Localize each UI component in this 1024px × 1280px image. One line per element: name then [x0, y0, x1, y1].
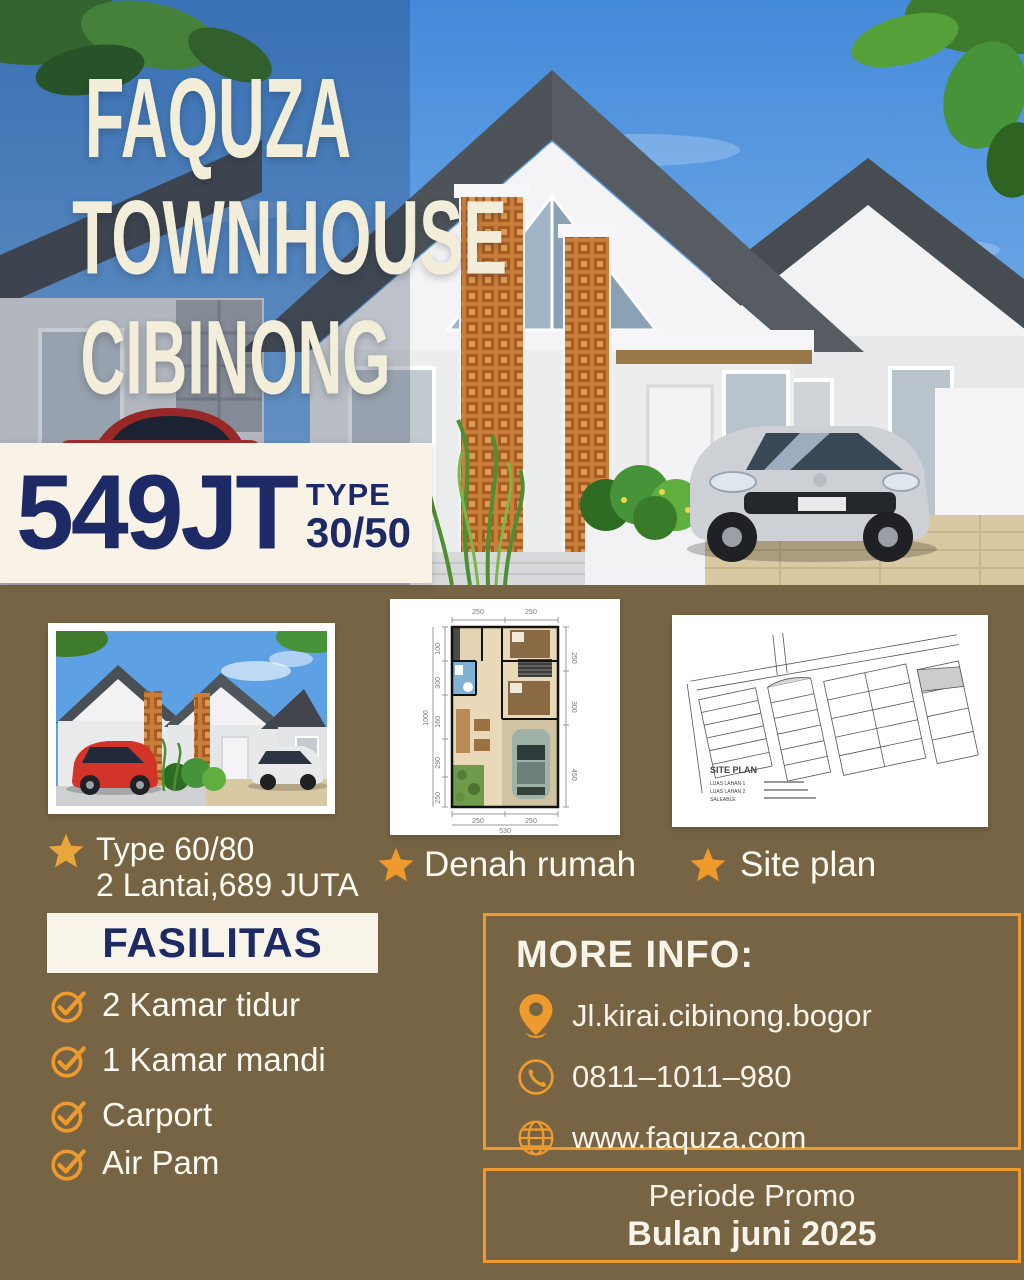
phone-text: 0811–1011–980: [572, 1059, 792, 1095]
address-text: Jl.kirai.cibinong.bogor: [572, 998, 872, 1034]
dim-label: 300: [570, 701, 577, 713]
dim-label: 290: [435, 757, 442, 769]
fasilitas-item: Air Pam: [50, 1144, 219, 1182]
dim-label-total: 530: [499, 828, 511, 835]
fasilitas-item-text: Air Pam: [102, 1144, 219, 1182]
dim-label: 250: [525, 818, 537, 825]
dim-label: 100: [435, 643, 442, 655]
photo-caption-line1: Type 60/80: [96, 832, 359, 868]
dim-label: 250: [435, 792, 442, 804]
house-thumbnail: [56, 631, 327, 806]
dim-label: 450: [570, 769, 577, 781]
phone-icon: [516, 1055, 556, 1099]
photo-caption: Type 60/80 2 Lantai,689 JUTA: [46, 832, 366, 904]
check-circle-icon: [50, 986, 88, 1024]
promo-line2: Bulan juni 2025: [627, 1215, 876, 1254]
check-circle-icon: [50, 1144, 88, 1182]
more-info-box: MORE INFO: Jl.kirai.cibinong.bogor 0811–…: [483, 913, 1021, 1150]
fasilitas-heading-bar: FASILITAS: [47, 913, 378, 973]
star-icon: [688, 846, 728, 884]
more-info-heading: MORE INFO:: [516, 934, 1018, 977]
address-row: Jl.kirai.cibinong.bogor: [516, 994, 1018, 1038]
location-pin-icon: [516, 994, 556, 1038]
siteplan-legend-2: LUAS LAHAN 2: [710, 789, 746, 795]
dim-label-total: 1000: [423, 710, 430, 726]
star-icon: [376, 846, 416, 884]
floorplan-caption: Denah rumah: [376, 845, 636, 885]
flyer-poster: FAQUZA TOWNHOUSE CIBINONG 549JT TYPE 30/…: [0, 0, 1024, 1280]
star-icon: [46, 832, 86, 870]
website-row: www.faquza.com: [516, 1116, 1018, 1160]
check-circle-icon: [50, 1096, 88, 1134]
title-line-2: TOWNHOUSE: [72, 178, 352, 299]
price-badge: 549JT TYPE 30/50: [0, 443, 432, 583]
dim-label: 160: [435, 716, 442, 728]
fasilitas-item: 1 Kamar mandi: [50, 1041, 326, 1079]
dim-label: 250: [525, 609, 537, 616]
website-text: www.faquza.com: [572, 1120, 806, 1156]
type-label: TYPE: [306, 479, 411, 510]
globe-icon: [516, 1116, 556, 1160]
promo-period-box: Periode Promo Bulan juni 2025: [483, 1168, 1021, 1263]
fasilitas-item-text: 2 Kamar tidur: [102, 986, 300, 1024]
siteplan-card: SITE PLAN LUAS LAHAN 1 LUAS LAHAN 2 SALE…: [672, 615, 988, 827]
siteplan-caption: Site plan: [688, 845, 876, 885]
check-circle-icon: [50, 1041, 88, 1079]
floorplan-card: 250 250 100 300 160 290 250 1000 250 300…: [390, 599, 620, 835]
fasilitas-heading: FASILITAS: [102, 919, 323, 967]
type-spec: TYPE 30/50: [306, 473, 411, 554]
dim-label: 250: [570, 652, 577, 664]
price-value: 549JT: [16, 452, 296, 573]
dim-label: 250: [472, 609, 484, 616]
house-photo-card: [48, 623, 335, 814]
fasilitas-item-text: 1 Kamar mandi: [102, 1041, 326, 1079]
floorplan-drawing: 250 250 100 300 160 290 250 1000 250 300…: [390, 599, 620, 835]
dim-label: 250: [472, 818, 484, 825]
siteplan-legend-3: SALEABLE: [710, 797, 736, 803]
phone-row: 0811–1011–980: [516, 1055, 1018, 1099]
siteplan-caption-text: Site plan: [740, 845, 876, 885]
fasilitas-item-text: Carport: [102, 1096, 212, 1134]
promo-line1: Periode Promo: [649, 1178, 856, 1214]
floorplan-caption-text: Denah rumah: [424, 845, 636, 885]
siteplan-label: SITE PLAN: [710, 765, 757, 775]
fasilitas-item: Carport: [50, 1096, 212, 1134]
dim-label: 300: [435, 677, 442, 689]
fasilitas-item: 2 Kamar tidur: [50, 986, 300, 1024]
title-line-3: CIBINONG: [81, 298, 344, 419]
photo-caption-line2: 2 Lantai,689 JUTA: [96, 868, 359, 904]
siteplan-legend-1: LUAS LAHAN 1: [710, 781, 746, 787]
title-line-1: FAQUZA: [85, 52, 339, 183]
type-value: 30/50: [306, 512, 411, 554]
siteplan-drawing: SITE PLAN LUAS LAHAN 1 LUAS LAHAN 2 SALE…: [672, 615, 988, 827]
